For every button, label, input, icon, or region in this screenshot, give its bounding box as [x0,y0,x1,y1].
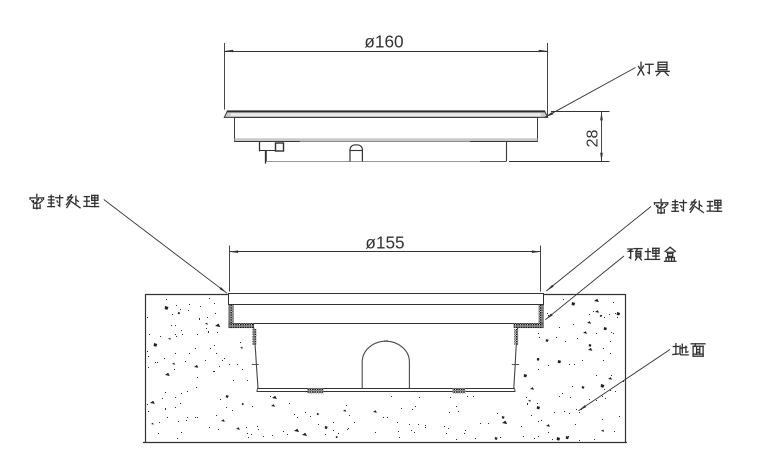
svg-text:28: 28 [585,130,602,148]
svg-text:ø155: ø155 [365,232,404,252]
svg-text:ø160: ø160 [364,32,403,52]
